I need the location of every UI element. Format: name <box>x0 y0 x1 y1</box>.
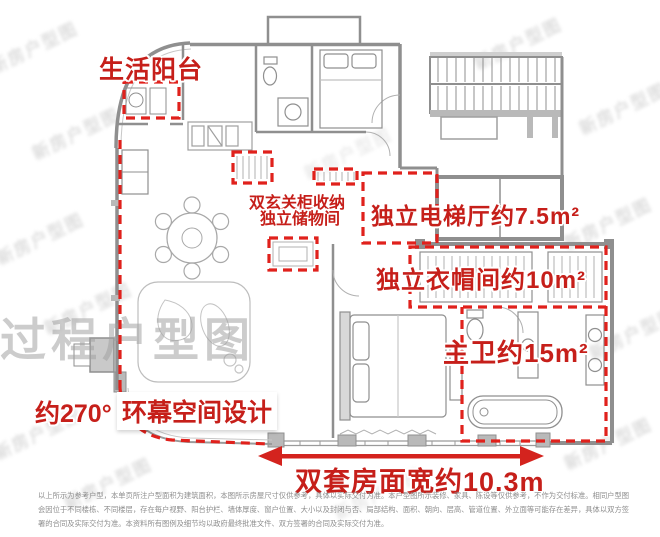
upper-bathroom <box>256 44 312 132</box>
disclaimer: 以上所示为参考户型，本单页所注户型面积为建筑面积，本图所示房屋尺寸仅供参考，具体… <box>38 489 638 531</box>
cloakroom-label: 独立衣帽间约10m² <box>376 260 586 295</box>
life-balcony-label: 生活阳台 <box>99 50 203 86</box>
floorplan-page: 新房户型图 新房户型图 新房户型图 新房户型图 新房户型图 新房户型图 新房户型… <box>0 0 660 537</box>
foyer-label-line2: 独立储物间 <box>260 205 340 229</box>
balcony-appliances <box>126 88 166 114</box>
panorama-degree-label: 约270° <box>35 394 112 430</box>
disclaimer-line-1: 以上所示为参考户型，本单页所注户型面积为建筑面积，本图所示房屋尺寸仅供参考，具体… <box>38 489 638 503</box>
master-bath-label: 主卫约15m² <box>443 333 589 370</box>
upper-bedroom <box>312 44 390 156</box>
disclaimer-line-2: 会因位于不同楼栋、不同楼层，存在每户视野、阳台护栏、墙体厚度、窗户位置、大小以及… <box>38 503 638 517</box>
disclaimer-line-3: 署的合同及实际交付为准。本资料所有图例及细节均以政府最终批准文件、双方签署的合同… <box>38 517 638 531</box>
panorama-label: 环幕空间设计 <box>117 392 277 430</box>
staircase <box>430 52 562 139</box>
elevator-hall-label: 独立电梯厅约7.5m² <box>371 197 580 231</box>
kitchen-counter <box>188 122 252 150</box>
dining-table <box>155 197 228 279</box>
process-plan-watermark: 过程户型图 <box>0 304 255 370</box>
